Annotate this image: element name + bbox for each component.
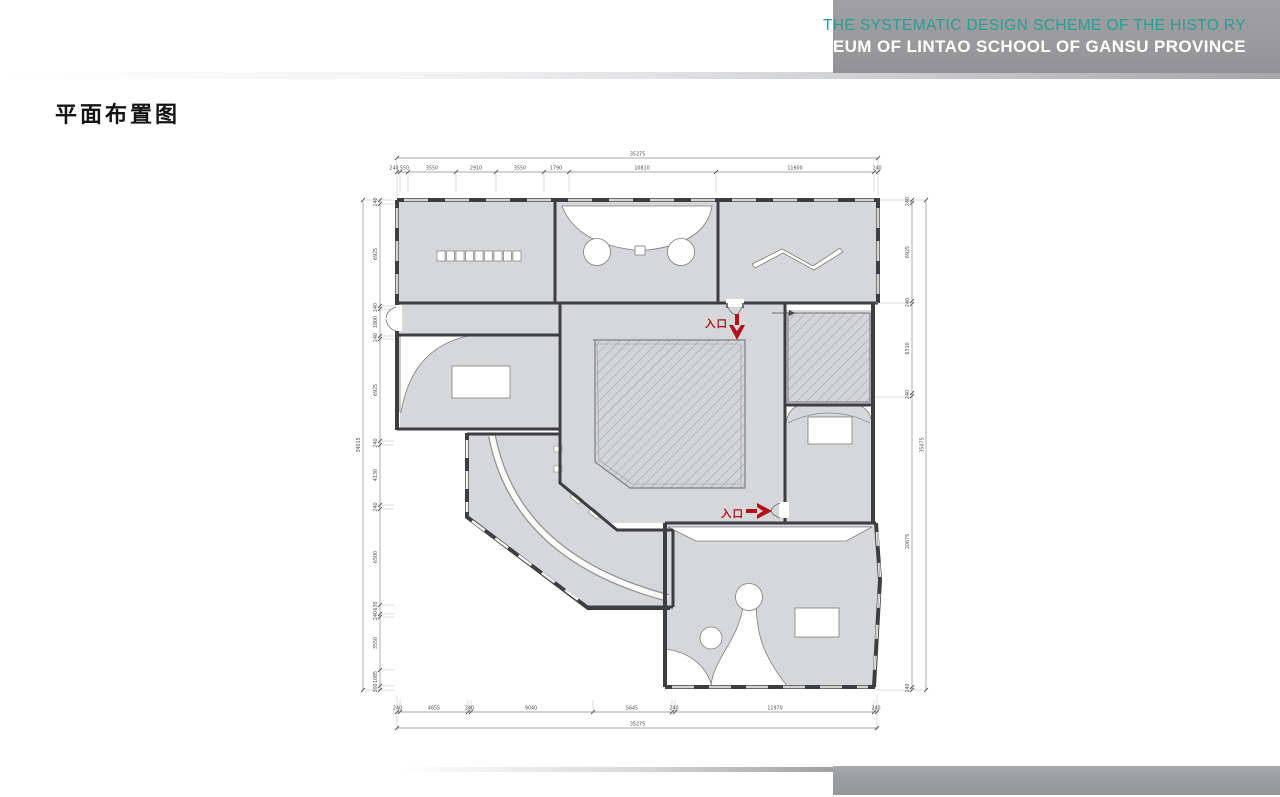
floor-plan: 35275 240 550 3550 2910 3550 1790 10810 …: [350, 140, 950, 740]
dim-label: 240: [373, 502, 379, 511]
dim-label: 6925: [373, 384, 379, 396]
dim-label: 4130: [373, 469, 379, 481]
dim-label: 35275: [630, 722, 645, 728]
dim-label: 1085: [373, 671, 379, 683]
dim-label: 11600: [787, 166, 802, 172]
entrance-top-label: 入口: [705, 318, 728, 330]
dim-label: 1790: [550, 166, 562, 172]
dim-label: 35075: [920, 437, 926, 452]
column: [668, 239, 695, 266]
dim-label: 6500: [373, 551, 379, 563]
dim-label: 240: [905, 298, 911, 307]
dim-label: 10810: [634, 166, 649, 172]
dim-label: 6925: [373, 248, 379, 260]
dim-label: 240: [871, 706, 880, 712]
display-table: [452, 366, 510, 398]
central-hatch: [593, 340, 745, 488]
dim-label: 240: [373, 303, 379, 312]
column: [736, 584, 763, 611]
slide-page: THE SYSTEMATIC DESIGN SCHEME OF THE HIST…: [0, 0, 1280, 797]
dim-label: 3550: [514, 166, 526, 172]
dim-label: 240: [373, 611, 379, 620]
dim-label: 35275: [630, 152, 645, 158]
column: [584, 239, 611, 266]
arch-center-tab: [635, 246, 645, 255]
dim-label: 20675: [905, 534, 911, 549]
dim-label: 240: [872, 166, 881, 172]
dim-label: 240: [373, 333, 379, 342]
dim-label: 240: [393, 706, 402, 712]
dim-label: 300: [373, 683, 379, 692]
display-table: [795, 608, 839, 637]
dim-label: 550: [400, 166, 409, 172]
header-line1: THE SYSTEMATIC DESIGN SCHEME OF THE HIST…: [823, 17, 1246, 35]
dim-label: 6925: [905, 246, 911, 258]
dim-label: 240: [905, 683, 911, 692]
right-hatch-room: [788, 313, 870, 402]
dim-label: 2910: [470, 166, 482, 172]
dim-label: 240: [373, 197, 379, 206]
dim-label: 240: [905, 197, 911, 206]
column: [700, 627, 722, 649]
entrance-side-label: 入口: [721, 508, 744, 520]
dim-label: 240: [669, 706, 678, 712]
bottom-gradient-strip: [400, 767, 833, 772]
dim-label: 630: [373, 601, 379, 610]
dim-label: 6310: [905, 342, 911, 354]
dim-label: 9040: [525, 706, 537, 712]
dim-label: 240: [373, 438, 379, 447]
dim-label: 5645: [626, 706, 638, 712]
header-line2: MUSEUM OF LINTAO SCHOOL OF GANSU PROVINC…: [794, 37, 1246, 57]
dim-label: 240: [465, 706, 474, 712]
page-title: 平面布置图: [55, 97, 180, 129]
dim-label: 240: [389, 166, 398, 172]
header-title-block: THE SYSTEMATIC DESIGN SCHEME OF THE HIST…: [833, 0, 1280, 73]
bottom-gray-bar: [833, 766, 1280, 795]
dim-label: 1800: [373, 316, 379, 328]
floor-plan-container: 35275 240 550 3550 2910 3550 1790 10810 …: [350, 140, 950, 740]
dim-label: 3550: [373, 637, 379, 649]
display-case-row: [437, 251, 521, 261]
dim-label: 3550: [426, 166, 438, 172]
display-table: [808, 417, 852, 444]
dim-label: 4655: [428, 706, 440, 712]
ceiling-strip: [668, 527, 872, 541]
dim-label: 34015: [356, 437, 362, 452]
top-gradient-strip: [0, 72, 1280, 79]
dim-label: 240: [905, 390, 911, 399]
dim-label: 11970: [767, 706, 782, 712]
